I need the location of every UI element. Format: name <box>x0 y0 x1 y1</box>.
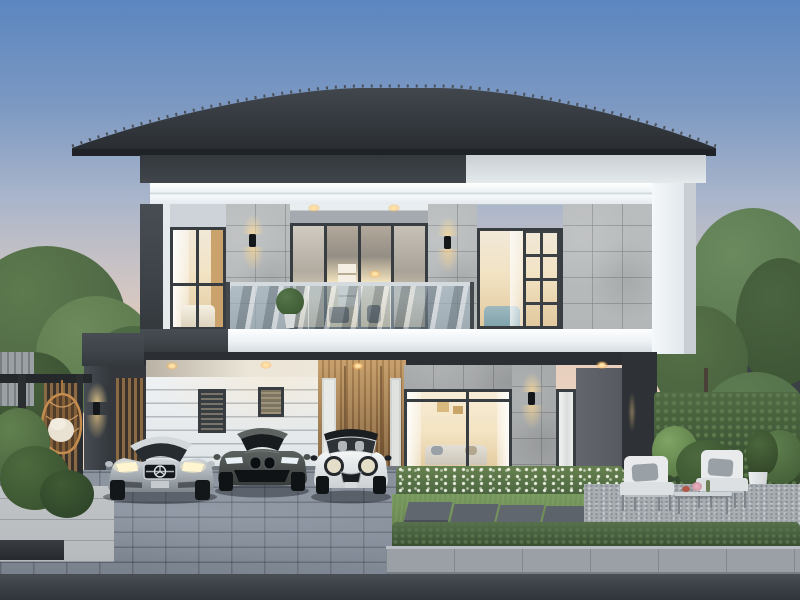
car-mirror <box>214 454 221 460</box>
scene <box>0 0 800 600</box>
wall-art <box>453 406 463 414</box>
carport-window-2 <box>258 387 284 417</box>
kidney-grille <box>250 457 261 469</box>
chair-leg <box>634 497 636 511</box>
wall-art <box>437 402 449 412</box>
car-bmw <box>212 420 312 500</box>
wall-sconce <box>528 372 543 429</box>
license-plate <box>345 482 357 488</box>
chair-leg <box>744 491 746 508</box>
sconce-glow-up <box>437 216 459 236</box>
living-room-window <box>404 389 512 470</box>
corner-beam <box>140 329 228 353</box>
sconce-glow-up <box>521 372 543 392</box>
railing-post <box>470 282 474 330</box>
car-windshield <box>326 437 376 454</box>
street <box>0 574 800 600</box>
window-mullion <box>170 283 226 286</box>
wall-sconce <box>249 214 264 271</box>
recess-sconce-glow <box>628 392 636 432</box>
headlight-left <box>225 457 243 464</box>
sconce-body <box>249 234 256 247</box>
garden-fern <box>40 470 94 518</box>
patio-armchair-left <box>618 456 676 514</box>
upper-corner-wall <box>140 204 163 329</box>
car-mirror <box>311 455 318 461</box>
sheer-curtain <box>559 392 573 467</box>
table-top <box>674 492 732 496</box>
curtain-left <box>407 392 421 467</box>
curtain-right <box>497 392 509 467</box>
frame-column-right-face <box>684 183 696 354</box>
window-mullion <box>523 228 526 329</box>
stepping-stone <box>403 502 452 523</box>
window-transom <box>404 399 512 402</box>
carport-downlight <box>166 362 178 370</box>
sconce-glow-down <box>437 249 459 273</box>
fascia-band <box>150 183 696 205</box>
car-mini <box>308 424 394 506</box>
table-leg <box>726 496 728 514</box>
railing-post <box>226 282 230 330</box>
chair-leg <box>622 495 624 511</box>
interior-lamp-glow <box>369 270 381 278</box>
window-header-left <box>170 204 226 227</box>
chair-leg <box>669 495 671 511</box>
table-flowers <box>692 482 702 491</box>
car-seat <box>338 441 347 451</box>
bumper-mesh <box>234 470 290 482</box>
grille <box>341 472 361 484</box>
kidney-grille <box>264 457 275 469</box>
door-downlight <box>352 362 364 370</box>
railing-joint <box>390 286 391 330</box>
bedroom-right-interior <box>480 231 560 326</box>
balcony-plant-foliage <box>276 288 304 316</box>
carport-downlight <box>260 361 272 369</box>
headlight-glow <box>180 461 206 473</box>
blinds <box>261 390 281 414</box>
wheel <box>291 472 305 491</box>
window-grid-pane <box>526 231 560 326</box>
chair-leg <box>734 493 736 508</box>
chair-pillow <box>50 418 66 430</box>
chair-leg <box>658 497 660 511</box>
sconce-glow-up <box>86 382 108 402</box>
table-fruit <box>682 486 690 492</box>
sconce-body <box>444 236 451 249</box>
headlight-round <box>326 458 343 475</box>
wheel <box>219 472 233 491</box>
wheel <box>316 476 329 494</box>
porch-downlight <box>596 361 608 369</box>
upper-wall-light <box>466 155 706 183</box>
car-mirror <box>385 455 392 461</box>
sconce-glow-down <box>521 405 543 429</box>
railing-joint <box>308 286 309 330</box>
bedroom-window-right <box>477 228 563 329</box>
car-mirror <box>105 461 113 467</box>
wheel <box>373 476 386 494</box>
car-seat <box>355 441 364 451</box>
sconce-body <box>528 392 535 405</box>
stone-wall-upper-right <box>563 204 652 329</box>
sofa-cushion <box>431 446 443 455</box>
downlight <box>308 204 320 212</box>
wheel <box>195 480 210 500</box>
upper-pilaster <box>163 204 170 329</box>
chair-pillow <box>631 463 658 482</box>
sidewalk <box>386 546 800 576</box>
planter-curb <box>0 540 64 560</box>
balcony-floor-band <box>226 329 652 352</box>
wall-sconce <box>444 216 459 273</box>
downlight <box>388 204 400 212</box>
sconce-glow-down <box>242 247 264 271</box>
coffee-table <box>674 486 732 516</box>
sconce-body <box>93 402 100 415</box>
curtain-sheer <box>510 231 524 326</box>
chair-pillow <box>707 458 733 477</box>
balcony-railing <box>226 282 474 330</box>
frame-column-right <box>652 183 684 354</box>
tall-curtain-window <box>556 389 576 470</box>
car-windshield <box>241 434 284 451</box>
roof-face <box>72 88 716 156</box>
table-leg <box>678 496 680 514</box>
wheel <box>110 480 125 500</box>
car-mercedes <box>100 424 220 506</box>
living-room-interior <box>407 392 509 467</box>
upper-wall-dark <box>140 155 466 183</box>
railing-glass <box>226 286 474 330</box>
headlight-round <box>360 458 377 475</box>
chair-seat <box>620 482 674 497</box>
hip-roof <box>56 78 720 162</box>
planter-plant <box>746 430 778 476</box>
headlight-right <box>281 457 299 464</box>
license-plate <box>151 481 169 488</box>
sconce-glow-up <box>242 214 264 234</box>
table-bottle <box>706 480 710 492</box>
carport-roof-slab <box>82 333 144 366</box>
headlight-glow <box>113 461 139 473</box>
window-mullion <box>196 227 199 330</box>
bedroom-window-left <box>170 227 226 330</box>
